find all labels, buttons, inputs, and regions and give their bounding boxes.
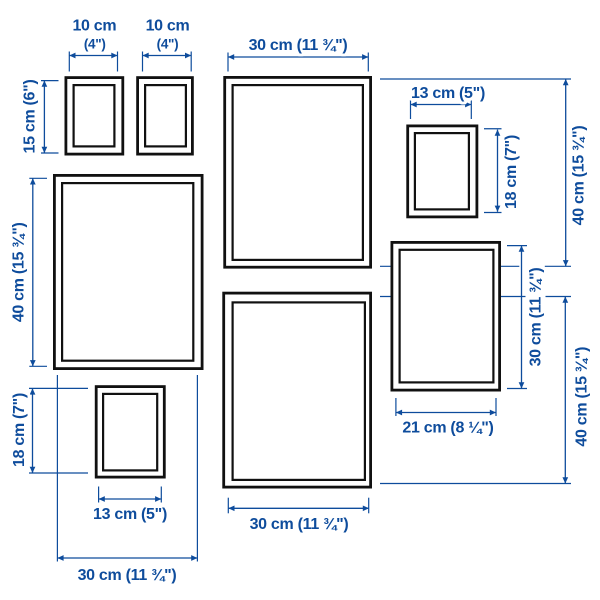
svg-text:18 cm (7"): 18 cm (7") <box>503 135 520 209</box>
svg-text:30 cm (11 ¾"): 30 cm (11 ¾") <box>528 268 545 367</box>
svg-text:10 cm: 10 cm <box>72 18 116 35</box>
svg-text:30 cm (11 ¾"): 30 cm (11 ¾") <box>249 37 348 54</box>
svg-text:13 cm (5"): 13 cm (5") <box>411 85 485 102</box>
svg-text:18 cm (7"): 18 cm (7") <box>11 393 28 467</box>
svg-text:(4"): (4") <box>84 36 106 51</box>
svg-text:(4"): (4") <box>157 36 179 51</box>
svg-text:15 cm (6"): 15 cm (6") <box>22 80 39 154</box>
svg-text:40 cm (15 ¾"): 40 cm (15 ¾") <box>571 126 588 226</box>
svg-text:30 cm (11 ¾"): 30 cm (11 ¾") <box>250 516 349 533</box>
svg-text:30 cm (11 ¾"): 30 cm (11 ¾") <box>78 567 177 584</box>
svg-text:10 cm: 10 cm <box>146 18 190 35</box>
svg-text:21 cm (8 ¼"): 21 cm (8 ¼") <box>402 420 493 437</box>
svg-text:13 cm (5"): 13 cm (5") <box>93 506 167 523</box>
svg-text:40 cm (15 ¾"): 40 cm (15 ¾") <box>574 347 591 447</box>
svg-text:40 cm (15 ¾"): 40 cm (15 ¾") <box>11 222 28 322</box>
